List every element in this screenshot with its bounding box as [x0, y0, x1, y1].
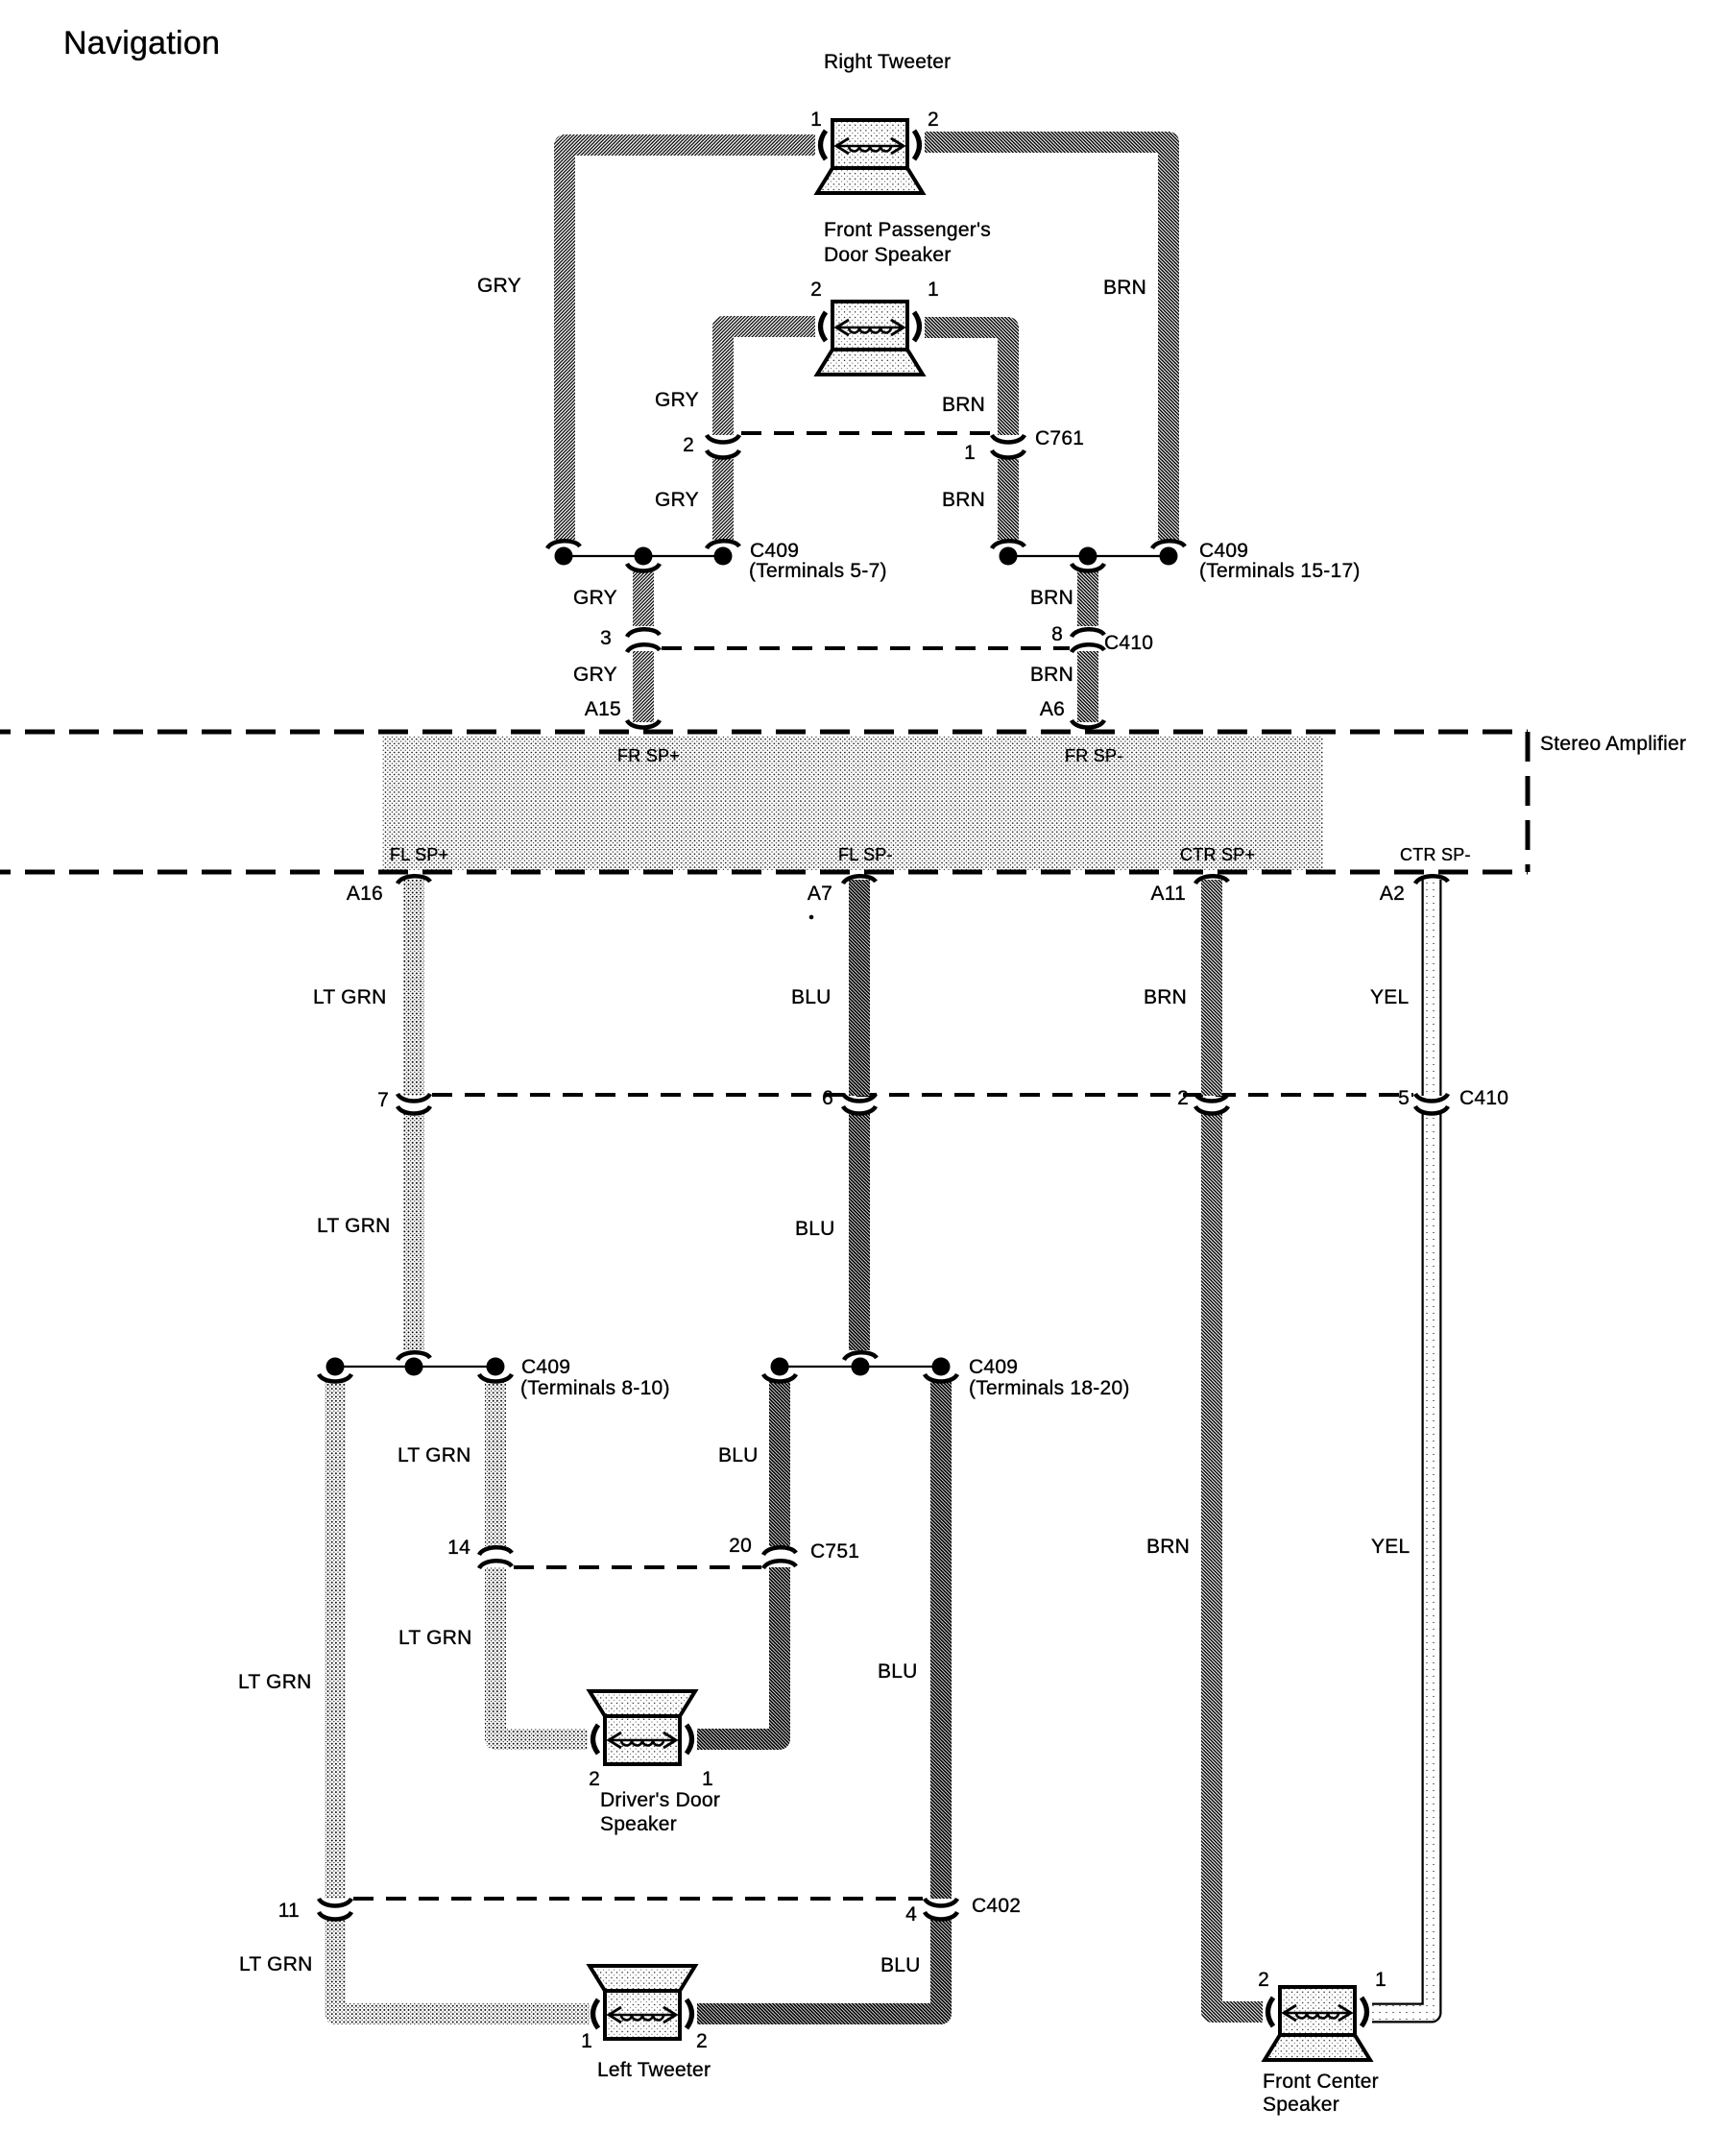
svg-text:LT GRN: LT GRN	[398, 1627, 472, 1649]
svg-text:LT GRN: LT GRN	[313, 986, 387, 1008]
svg-text:A2: A2	[1380, 883, 1405, 905]
svg-text:Navigation: Navigation	[63, 25, 220, 61]
svg-text:Stereo Amplifier: Stereo Amplifier	[1540, 733, 1686, 755]
svg-text:YEL: YEL	[1371, 1536, 1410, 1558]
svg-text:A7: A7	[808, 883, 832, 905]
svg-text:6: 6	[822, 1087, 833, 1109]
svg-text:3: 3	[600, 627, 612, 649]
svg-text:1: 1	[702, 1768, 713, 1790]
svg-text:BLU: BLU	[718, 1444, 759, 1466]
svg-text:BRN: BRN	[1146, 1536, 1190, 1558]
svg-text:GRY: GRY	[655, 489, 699, 511]
svg-text:2: 2	[810, 279, 822, 301]
svg-text:11: 11	[278, 1900, 300, 1922]
svg-text:(Terminals 18-20): (Terminals 18-20)	[969, 1377, 1130, 1399]
svg-text:1: 1	[581, 2030, 592, 2052]
svg-text:(Terminals 8-10): (Terminals 8-10)	[520, 1377, 670, 1399]
svg-text:CTR SP-: CTR SP-	[1400, 845, 1471, 864]
svg-text:Door Speaker: Door Speaker	[824, 244, 952, 266]
svg-text:FR SP-: FR SP-	[1065, 746, 1123, 765]
svg-text:C409: C409	[969, 1356, 1018, 1378]
svg-text:BRN: BRN	[1030, 664, 1073, 686]
svg-text:Front Center: Front Center	[1263, 2071, 1379, 2093]
svg-text:FL SP-: FL SP-	[838, 845, 893, 864]
svg-text:(Terminals 15-17): (Terminals 15-17)	[1199, 560, 1361, 582]
svg-text:2: 2	[589, 1768, 600, 1790]
svg-text:14: 14	[447, 1537, 470, 1559]
svg-text:BLU: BLU	[880, 1954, 921, 1976]
svg-text:GRY: GRY	[573, 587, 617, 609]
svg-text:7: 7	[377, 1089, 389, 1111]
svg-text:(Terminals 5-7): (Terminals 5-7)	[749, 560, 887, 582]
svg-text:BLU: BLU	[791, 986, 832, 1008]
svg-text:LT GRN: LT GRN	[398, 1444, 471, 1466]
svg-text:C751: C751	[810, 1540, 859, 1562]
svg-text:BLU: BLU	[878, 1660, 918, 1683]
svg-text:1: 1	[1375, 1969, 1386, 1991]
svg-text:2: 2	[1258, 1969, 1269, 1991]
svg-text:GRY: GRY	[477, 275, 521, 297]
svg-text:BRN: BRN	[1144, 986, 1187, 1008]
svg-text:BRN: BRN	[942, 394, 985, 416]
svg-text:BLU: BLU	[795, 1218, 835, 1240]
svg-text:FR SP+: FR SP+	[617, 746, 680, 765]
svg-text:20: 20	[729, 1535, 752, 1557]
svg-text:A11: A11	[1150, 883, 1186, 905]
svg-text:A6: A6	[1040, 698, 1065, 720]
svg-text:5: 5	[1398, 1087, 1410, 1109]
svg-text:Right Tweeter: Right Tweeter	[824, 51, 951, 73]
svg-text:LT GRN: LT GRN	[238, 1671, 312, 1693]
svg-text:BRN: BRN	[1030, 587, 1073, 609]
svg-text:8: 8	[1051, 623, 1063, 645]
svg-text:C402: C402	[972, 1895, 1021, 1917]
svg-text:A15: A15	[585, 698, 621, 720]
svg-text:FL SP+: FL SP+	[390, 845, 448, 864]
svg-text:CTR SP+: CTR SP+	[1180, 845, 1255, 864]
svg-text:C409: C409	[521, 1356, 570, 1378]
svg-text:LT GRN: LT GRN	[239, 1953, 313, 1975]
svg-text:2: 2	[696, 2030, 708, 2052]
svg-text:GRY: GRY	[573, 664, 617, 686]
svg-text:YEL: YEL	[1370, 986, 1409, 1008]
svg-text:1: 1	[928, 279, 939, 301]
svg-text:1: 1	[964, 442, 976, 464]
svg-text:Speaker: Speaker	[600, 1813, 677, 1835]
svg-text:Driver's Door: Driver's Door	[600, 1789, 720, 1811]
svg-text:A16: A16	[347, 883, 383, 905]
svg-text:C410: C410	[1104, 632, 1153, 654]
svg-text:2: 2	[683, 434, 694, 456]
svg-text:LT GRN: LT GRN	[317, 1215, 391, 1237]
svg-text:4: 4	[905, 1903, 917, 1926]
svg-text:C761: C761	[1035, 427, 1084, 449]
svg-text:2: 2	[928, 109, 939, 131]
svg-text:BRN: BRN	[1103, 277, 1146, 299]
svg-text:BRN: BRN	[942, 489, 985, 511]
svg-text:1: 1	[810, 109, 822, 131]
svg-text:Front Passenger's: Front Passenger's	[824, 219, 991, 241]
svg-text:GRY: GRY	[655, 389, 699, 411]
svg-text:C409: C409	[750, 540, 799, 562]
svg-text:C410: C410	[1459, 1087, 1508, 1109]
svg-text:Left Tweeter: Left Tweeter	[597, 2059, 711, 2081]
svg-text:C409: C409	[1199, 540, 1248, 562]
svg-text:2: 2	[1177, 1087, 1189, 1109]
svg-text:Speaker: Speaker	[1263, 2094, 1339, 2116]
